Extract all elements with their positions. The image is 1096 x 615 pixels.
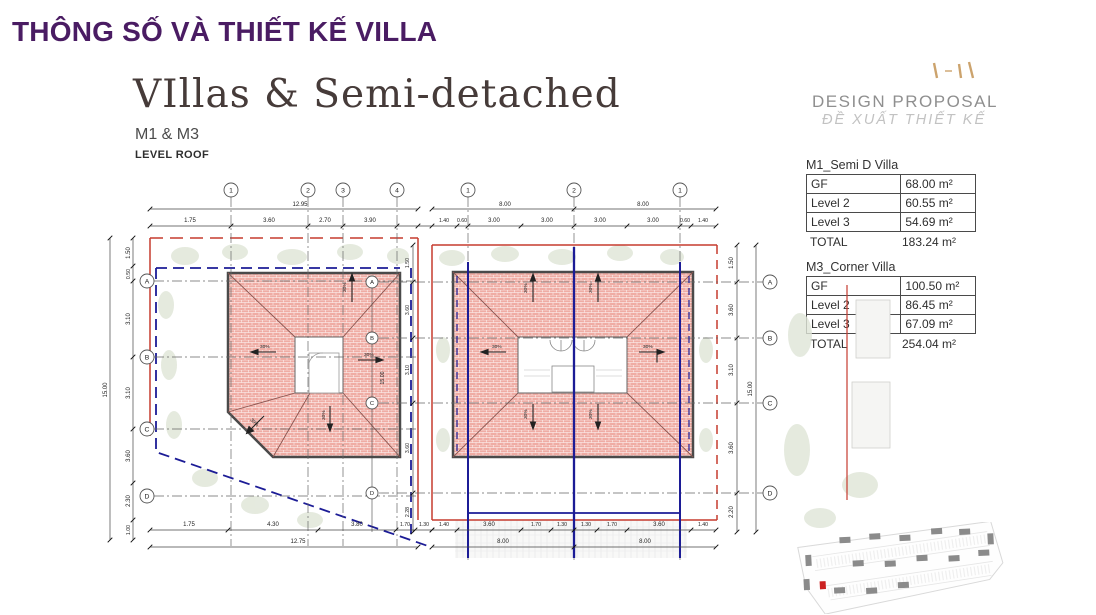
svg-text:1.50: 1.50 [405, 258, 411, 268]
svg-text:3.10: 3.10 [729, 364, 735, 376]
roof-m3-corner-villa [228, 273, 400, 457]
svg-text:2.70: 2.70 [319, 218, 331, 224]
svg-text:B: B [370, 336, 374, 342]
total-value: 183.24 m² [902, 235, 956, 249]
svg-text:3.60: 3.60 [729, 304, 735, 316]
page-title: THÔNG SỐ VÀ THIẾT KẾ VILLA [12, 16, 437, 48]
svg-text:C: C [768, 401, 773, 408]
svg-text:30%: 30% [523, 409, 529, 419]
svg-text:3.00: 3.00 [647, 218, 659, 224]
svg-text:4: 4 [395, 188, 399, 195]
model-label: M1 & M3 [135, 126, 199, 144]
svg-text:2.20: 2.20 [729, 506, 735, 518]
svg-text:3.10: 3.10 [405, 365, 411, 375]
svg-text:3.00: 3.00 [541, 218, 553, 224]
svg-text:C: C [145, 427, 150, 434]
row-value: 54.69 m² [901, 213, 976, 232]
svg-text:30%: 30% [321, 410, 327, 420]
svg-text:1: 1 [229, 188, 233, 195]
svg-text:B: B [145, 355, 150, 362]
svg-text:1.75: 1.75 [184, 218, 196, 224]
svg-text:3.60: 3.60 [126, 450, 132, 462]
svg-text:15.00: 15.00 [380, 371, 386, 384]
svg-text:1.70: 1.70 [607, 522, 617, 528]
svg-text:12.75: 12.75 [290, 539, 306, 545]
svg-text:2: 2 [306, 188, 310, 195]
svg-text:1.70: 1.70 [531, 522, 541, 528]
svg-text:1.40: 1.40 [698, 218, 708, 224]
svg-text:1: 1 [466, 188, 470, 195]
svg-text:3.10: 3.10 [126, 313, 132, 325]
svg-text:8.00: 8.00 [637, 202, 649, 208]
svg-text:2.30: 2.30 [126, 495, 132, 507]
svg-text:3.60: 3.60 [729, 442, 735, 454]
svg-text:A: A [145, 279, 150, 286]
svg-text:8.00: 8.00 [497, 539, 509, 545]
svg-text:A: A [370, 280, 374, 286]
svg-text:30%: 30% [588, 409, 594, 419]
svg-text:3.90: 3.90 [364, 218, 376, 224]
row-value: 86.45 m² [901, 296, 976, 315]
svg-text:D: D [370, 491, 374, 497]
svg-text:3: 3 [341, 188, 345, 195]
svg-text:1.40: 1.40 [698, 522, 708, 528]
design-proposal-subtitle: ĐỀ XUẤT THIẾT KẾ [822, 112, 1082, 128]
svg-text:3.60: 3.60 [263, 218, 275, 224]
total-value: 254.04 m² [902, 337, 956, 351]
svg-text:15.00: 15.00 [103, 382, 109, 398]
svg-text:8.00: 8.00 [499, 202, 511, 208]
svg-text:1.50: 1.50 [729, 257, 735, 269]
svg-text:2: 2 [572, 188, 576, 195]
svg-text:30%: 30% [364, 352, 374, 358]
svg-text:C: C [370, 401, 374, 407]
level-label: LEVEL ROOF [135, 149, 209, 161]
svg-text:1: 1 [678, 188, 682, 195]
svg-text:8.00: 8.00 [639, 539, 651, 545]
logo-mark-icon [928, 58, 984, 84]
highlighted-unit [820, 581, 826, 589]
svg-text:30%: 30% [260, 344, 270, 350]
svg-text:1.50: 1.50 [126, 247, 132, 259]
svg-text:30%: 30% [588, 283, 594, 293]
row-value: 67.09 m² [901, 315, 976, 334]
svg-text:3.60: 3.60 [483, 522, 495, 528]
svg-text:3.00: 3.00 [488, 218, 500, 224]
svg-text:1.70: 1.70 [400, 522, 410, 528]
row-value: 68.00 m² [901, 175, 976, 194]
row-value: 100.50 m² [901, 277, 976, 296]
svg-text:30%: 30% [492, 344, 502, 350]
svg-text:D: D [768, 491, 773, 498]
svg-text:1.40: 1.40 [439, 522, 449, 528]
svg-text:1.40: 1.40 [439, 218, 449, 224]
svg-text:3.10: 3.10 [126, 387, 132, 399]
svg-text:3.60: 3.60 [405, 443, 411, 453]
svg-text:0.50: 0.50 [126, 269, 132, 279]
design-proposal-title: DESIGN PROPOSAL [812, 92, 1072, 112]
svg-text:0.60: 0.60 [457, 218, 467, 224]
svg-text:30%: 30% [523, 283, 529, 293]
svg-text:30%: 30% [643, 344, 653, 350]
svg-text:3.80: 3.80 [351, 522, 363, 528]
svg-text:A: A [768, 280, 773, 287]
svg-text:2.28: 2.28 [405, 507, 411, 517]
svg-text:30%: 30% [342, 282, 348, 292]
svg-text:1.30: 1.30 [557, 522, 567, 528]
svg-text:1.75: 1.75 [183, 522, 195, 528]
svg-text:B: B [768, 336, 773, 343]
svg-text:1.00: 1.00 [126, 525, 132, 535]
site-key-map [793, 522, 1011, 614]
svg-text:1.30: 1.30 [581, 522, 591, 528]
roof-plan-drawing: 30% 30% 30% 30% 30% 30% 30% 30% 30% 30% … [95, 168, 905, 568]
adjacent-context [847, 285, 890, 500]
svg-text:1.30: 1.30 [419, 522, 429, 528]
svg-text:D: D [145, 494, 150, 501]
svg-text:4.30: 4.30 [267, 522, 279, 528]
row-value: 60.55 m² [901, 194, 976, 213]
svg-text:12.95: 12.95 [292, 202, 308, 208]
svg-text:0.60: 0.60 [680, 218, 690, 224]
svg-text:3.60: 3.60 [653, 522, 665, 528]
svg-text:15.00: 15.00 [748, 381, 754, 397]
drawing-heading: VIllas & Semi-detached [133, 72, 621, 117]
svg-text:3.00: 3.00 [594, 218, 606, 224]
svg-text:3.60: 3.60 [405, 305, 411, 315]
